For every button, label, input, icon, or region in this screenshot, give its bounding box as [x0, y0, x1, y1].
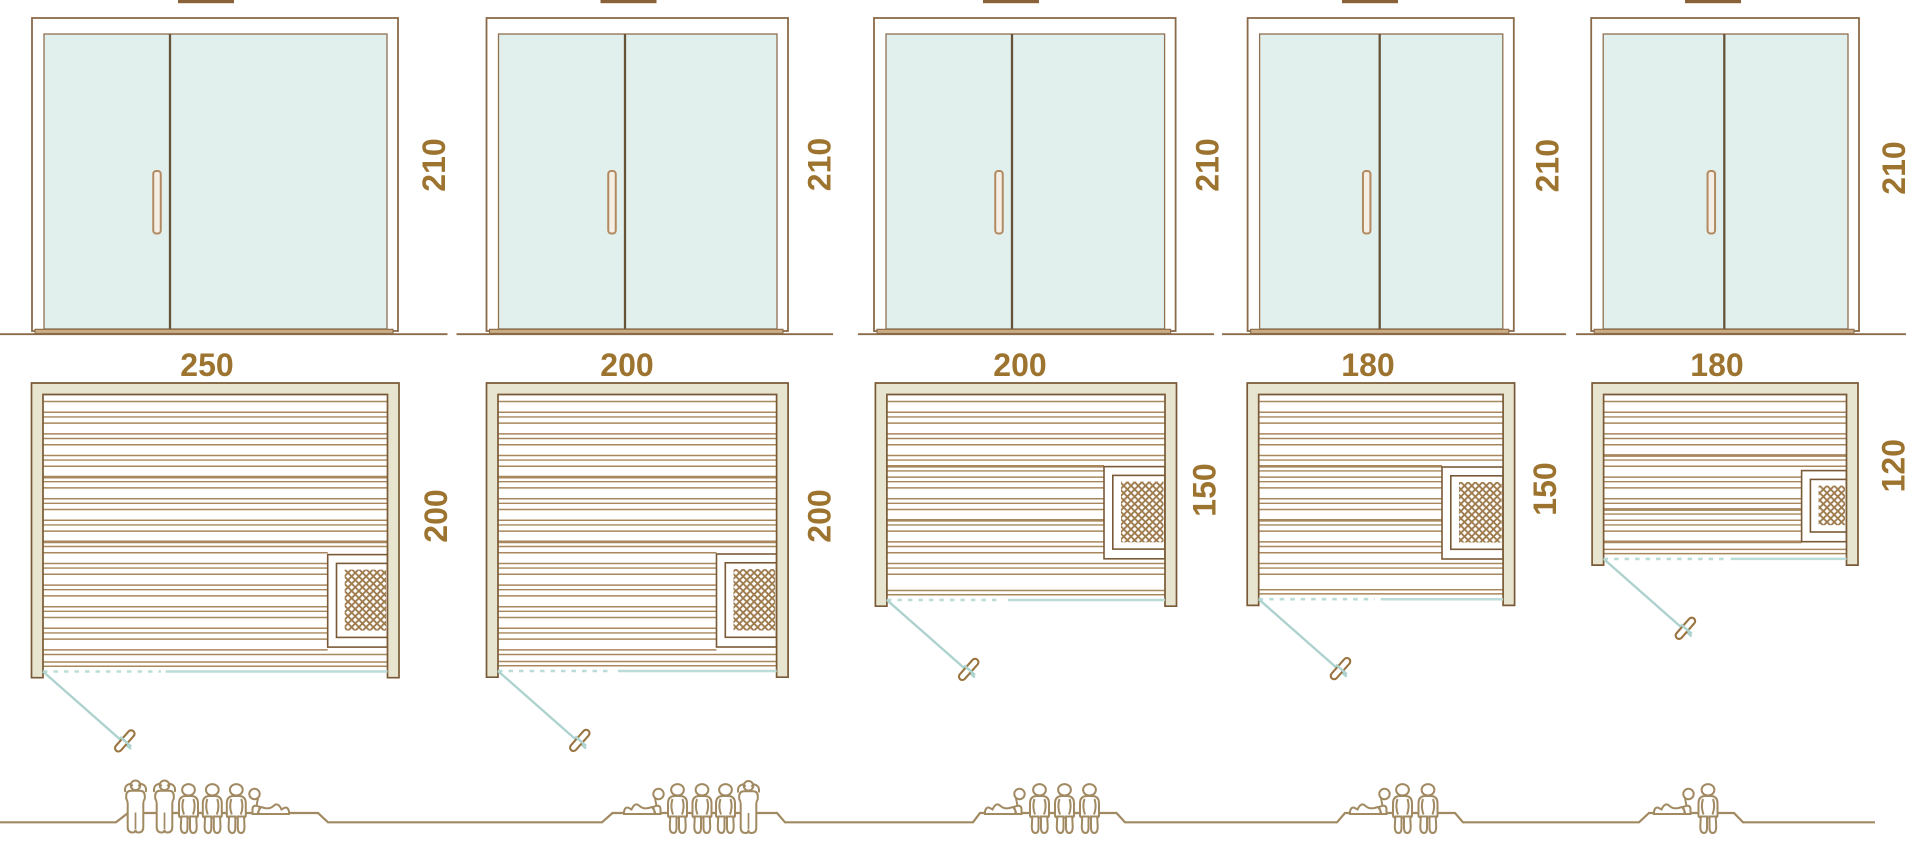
svg-text:120: 120 — [1876, 439, 1912, 492]
svg-text:150: 150 — [1527, 462, 1563, 515]
svg-text:210: 210 — [802, 138, 838, 191]
svg-text:200: 200 — [600, 347, 653, 383]
svg-text:210: 210 — [1876, 141, 1912, 194]
svg-text:200: 200 — [802, 489, 838, 542]
svg-text:250: 250 — [180, 347, 233, 383]
svg-text:150: 150 — [1187, 463, 1223, 516]
svg-text:180: 180 — [1690, 347, 1743, 383]
svg-text:180: 180 — [1341, 347, 1394, 383]
svg-text:200: 200 — [418, 489, 454, 542]
svg-text:210: 210 — [1530, 139, 1566, 192]
svg-text:210: 210 — [416, 138, 452, 191]
svg-text:200: 200 — [993, 347, 1046, 383]
svg-text:210: 210 — [1190, 138, 1226, 191]
